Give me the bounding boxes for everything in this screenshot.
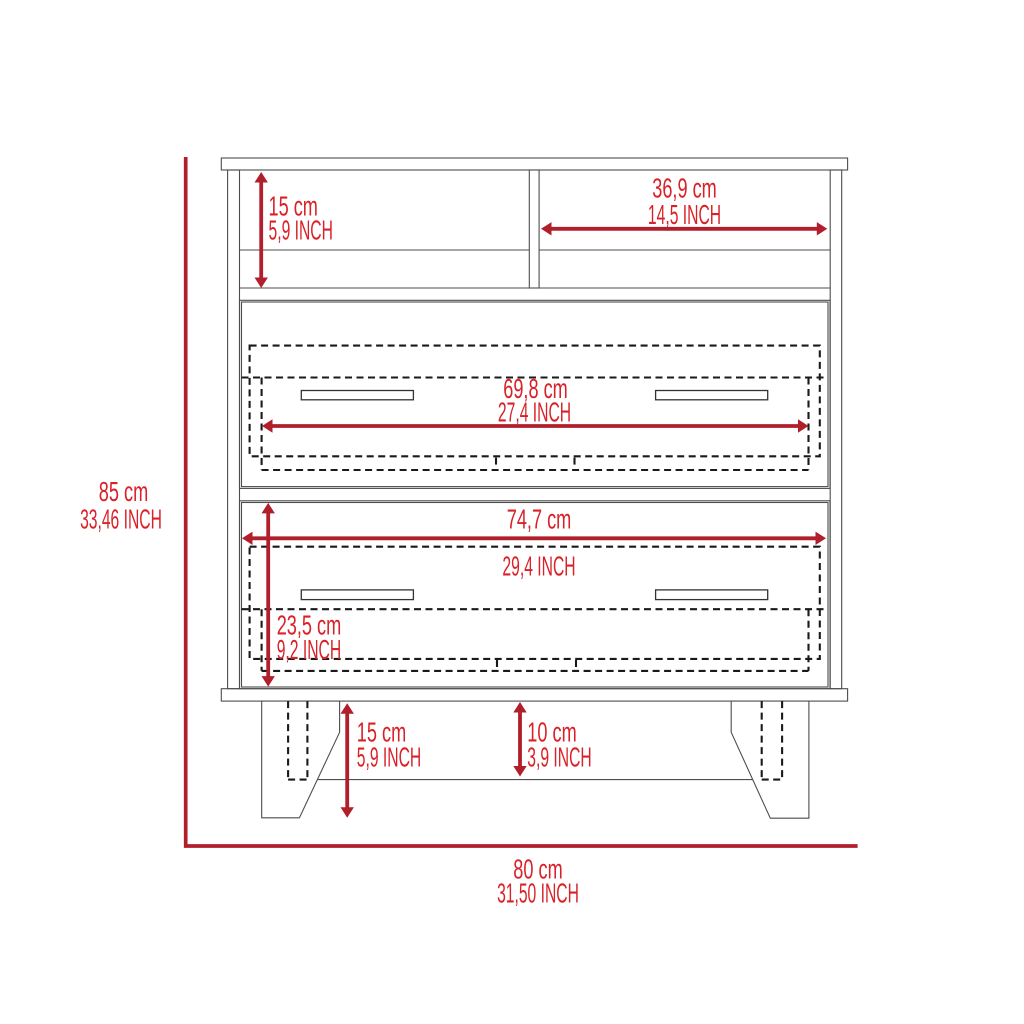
svg-text:5,9 INCH: 5,9 INCH [269, 215, 333, 246]
svg-text:5,9 INCH: 5,9 INCH [357, 742, 421, 773]
svg-text:31,50 INCH: 31,50 INCH [497, 878, 579, 909]
svg-text:85 cm: 85 cm [99, 476, 148, 507]
svg-text:29,4 INCH: 29,4 INCH [502, 551, 575, 582]
svg-text:33,46 INCH: 33,46 INCH [80, 504, 162, 535]
svg-text:27,4 INCH: 27,4 INCH [498, 397, 571, 428]
svg-text:3,9 INCH: 3,9 INCH [527, 742, 591, 773]
svg-text:9,2 INCH: 9,2 INCH [277, 634, 341, 665]
svg-text:14,5 INCH: 14,5 INCH [648, 199, 721, 230]
svg-text:74,7 cm: 74,7 cm [507, 504, 572, 535]
